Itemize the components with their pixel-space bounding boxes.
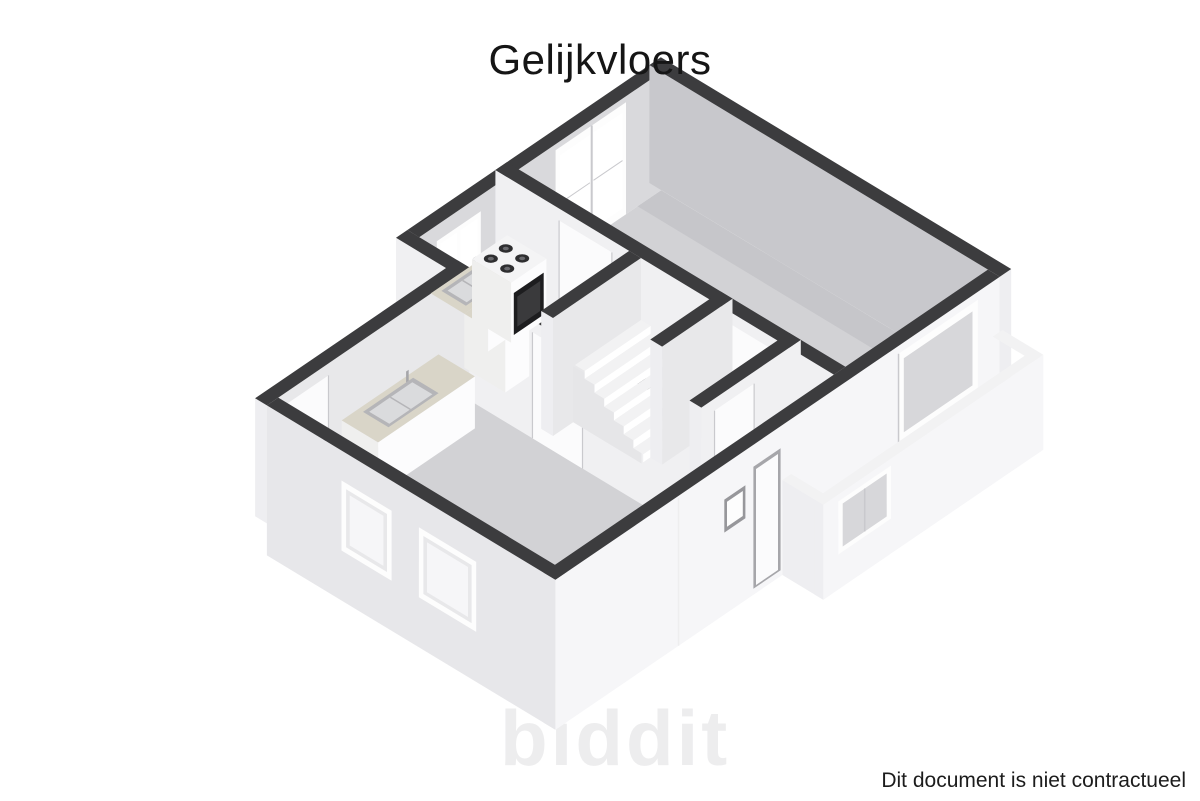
front-door — [753, 448, 780, 589]
page-title: Gelijkvloers — [0, 36, 1200, 84]
disclaimer-text: Dit document is niet contractueel — [881, 769, 1186, 793]
floorplan-canvas — [0, 0, 1200, 801]
page: biddit Gelijkvloers Dit document is niet… — [0, 0, 1200, 801]
